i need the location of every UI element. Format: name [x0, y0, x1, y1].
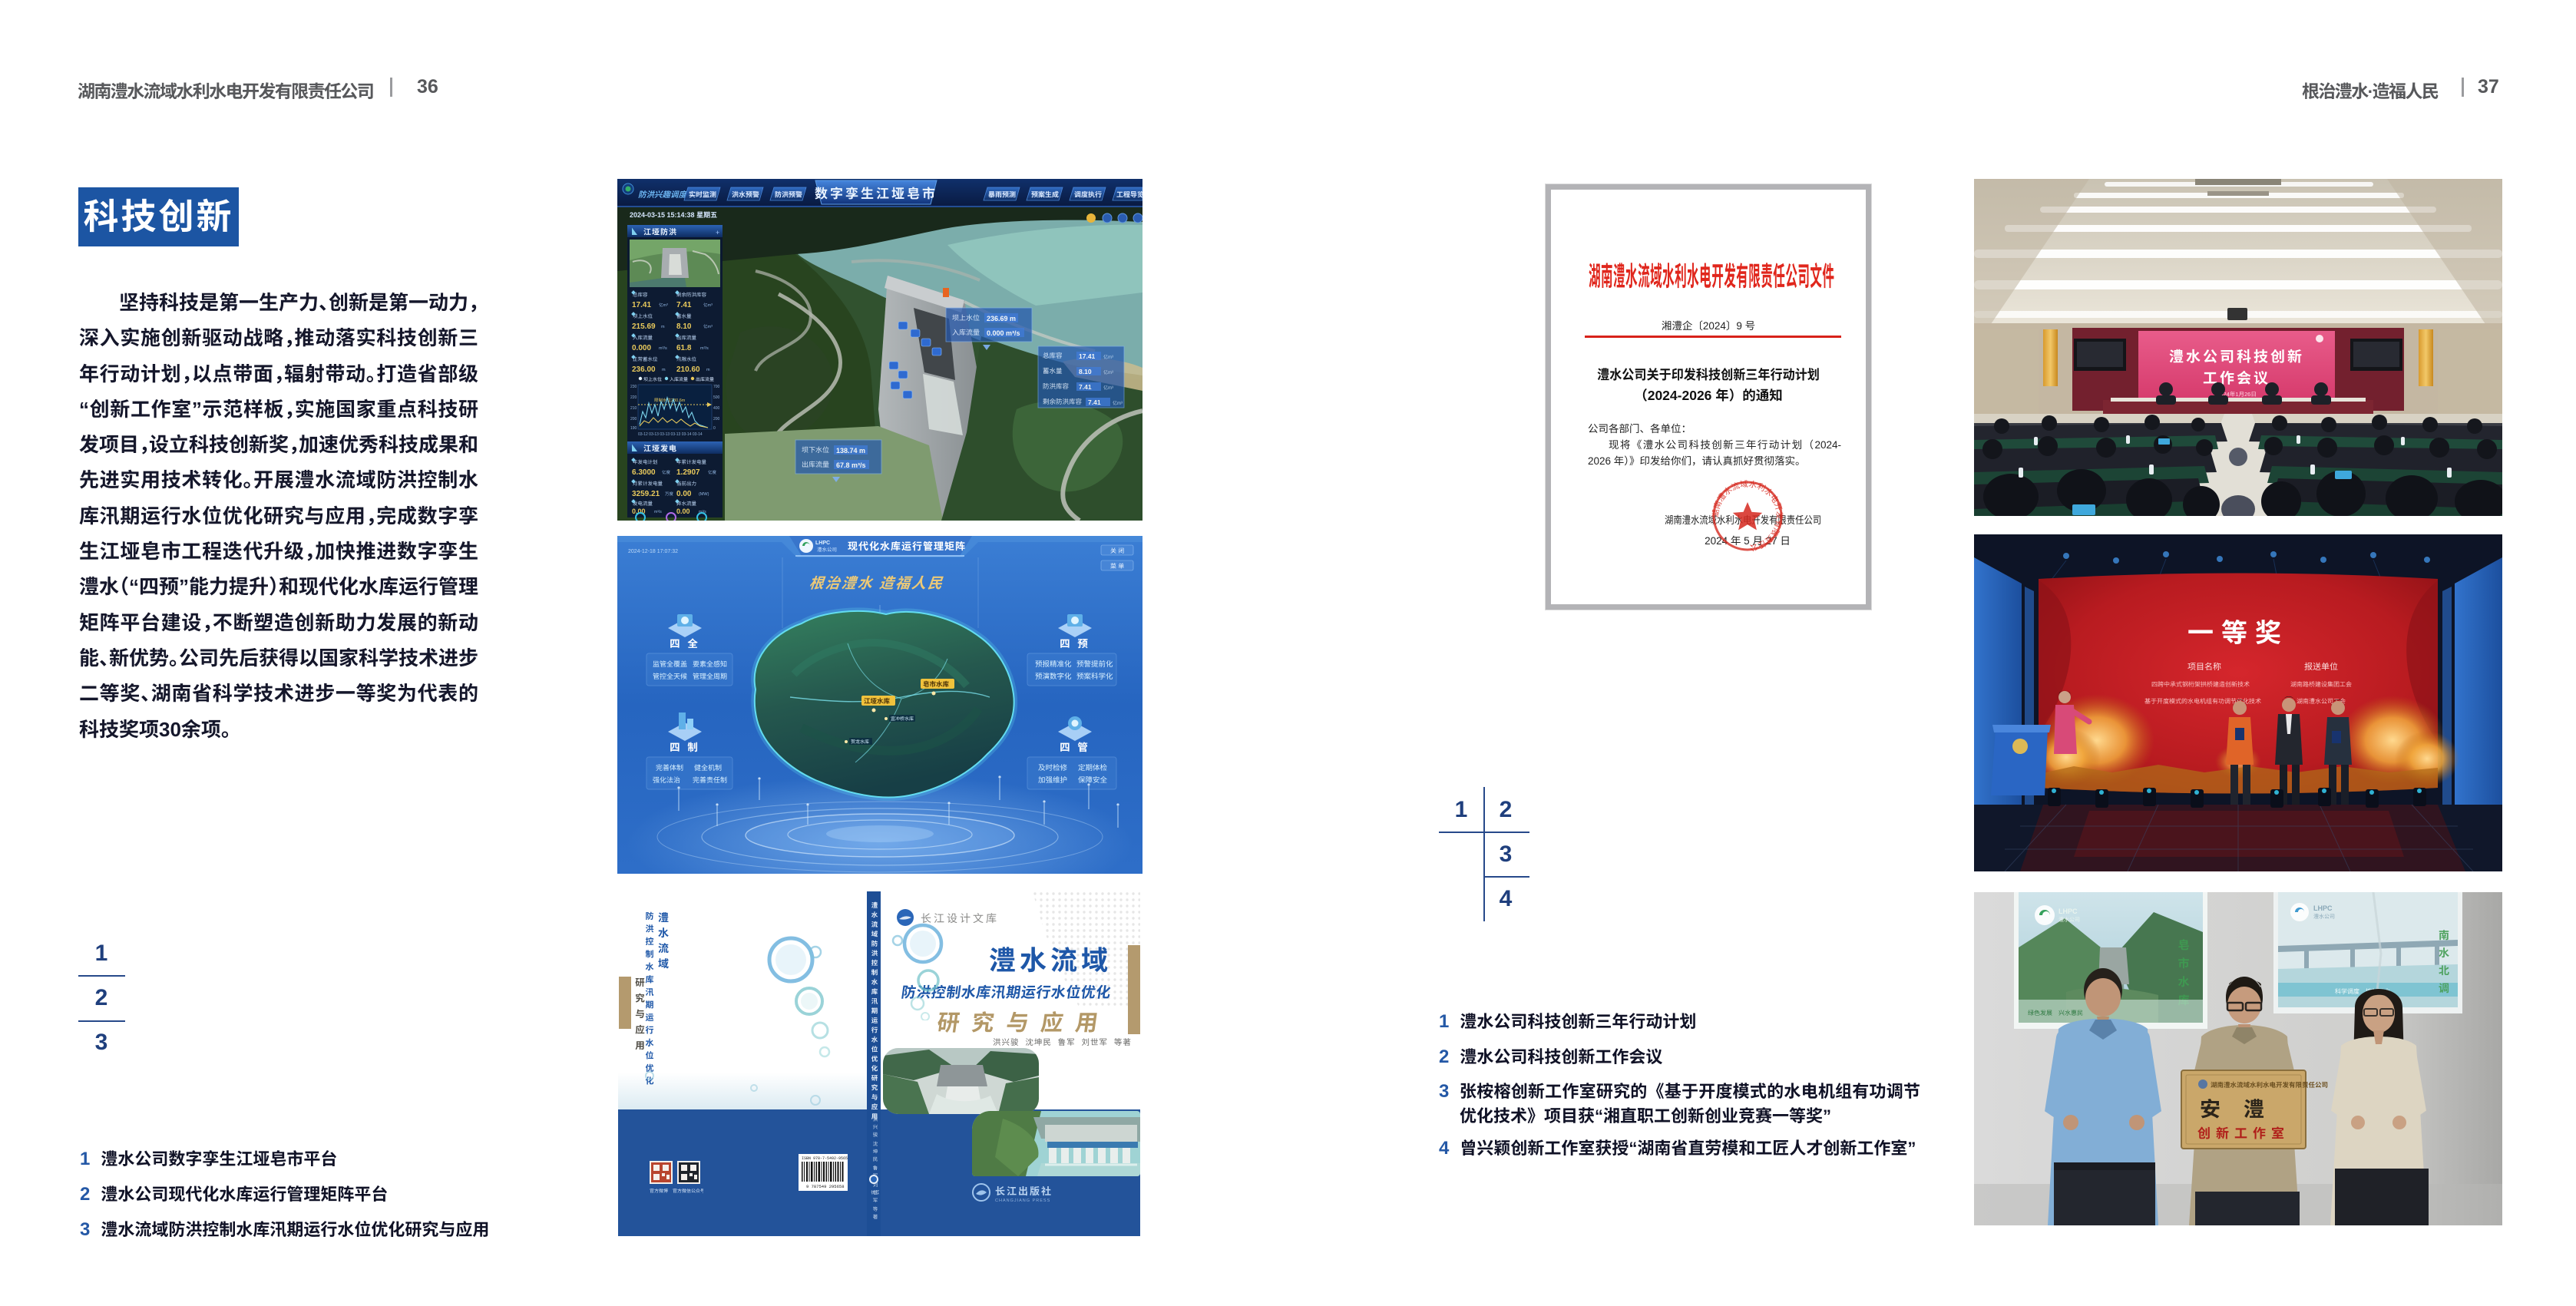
- svg-text:210: 210: [630, 406, 637, 411]
- svg-text:亿度: 亿度: [662, 470, 671, 475]
- svg-text:0.000: 0.000: [632, 344, 651, 352]
- svg-text:贺龙水库: 贺龙水库: [851, 739, 869, 745]
- svg-text:700: 700: [713, 385, 720, 389]
- svg-text:长江出版社: 长江出版社: [995, 1183, 1053, 1198]
- svg-text:190: 190: [630, 426, 637, 431]
- svg-text:防洪预警: 防洪预警: [775, 191, 802, 199]
- svg-text:2024-12-18 17:07:32: 2024-12-18 17:07:32: [628, 549, 678, 554]
- svg-text:长江: 长江: [871, 1189, 879, 1195]
- svg-text:当前出力: 当前出力: [676, 481, 696, 487]
- svg-text:亿m³: 亿m³: [703, 324, 713, 329]
- svg-text:湖南路桥建设集团工会: 湖南路桥建设集团工会: [2290, 681, 2352, 688]
- svg-text:工作会议: 工作会议: [2203, 370, 2270, 387]
- svg-text:入库流量: 入库流量: [670, 376, 688, 382]
- svg-text:强化法治: 强化法治: [653, 776, 680, 784]
- svg-text:210.60: 210.60: [676, 365, 700, 374]
- svg-text:ISBN 978-7-5492-9565-8: ISBN 978-7-5492-9565-8: [802, 1156, 848, 1161]
- svg-text:6.3000: 6.3000: [632, 468, 656, 477]
- svg-text:亿m³: 亿m³: [1103, 385, 1113, 391]
- svg-text:月累计发电量: 月累计发电量: [633, 481, 663, 487]
- svg-text:m: m: [706, 368, 710, 372]
- svg-text:实时监测: 实时监测: [689, 191, 716, 199]
- svg-text:调度执行: 调度执行: [1074, 191, 1102, 199]
- svg-text:亿m³: 亿m³: [659, 303, 668, 308]
- svg-text:正常蓄水位: 正常蓄水位: [633, 356, 658, 362]
- svg-text:要素全感知: 要素全感知: [693, 660, 727, 668]
- svg-text:1.2907: 1.2907: [676, 468, 700, 477]
- svg-text:弃水流量: 弃水流量: [676, 501, 697, 507]
- svg-text:m³/s: m³/s: [700, 346, 709, 351]
- svg-text:500: 500: [713, 395, 720, 400]
- svg-text:定期体检: 定期体检: [1078, 763, 1108, 772]
- svg-text:管控全天候: 管控全天候: [653, 673, 687, 680]
- svg-text:总库容: 总库容: [1043, 352, 1063, 359]
- svg-text:出库流量: 出库流量: [676, 335, 697, 341]
- svg-text:坝下水位: 坝下水位: [802, 446, 829, 454]
- svg-text:17.41: 17.41: [1079, 352, 1096, 360]
- svg-text:年累计发电量: 年累计发电量: [676, 459, 707, 465]
- svg-text:剩余防洪库容: 剩余防洪库容: [1043, 398, 1083, 405]
- svg-text:8.10: 8.10: [676, 322, 692, 331]
- svg-text:2024-03-15 15:14:38 星期五: 2024-03-15 15:14:38 星期五: [630, 211, 717, 219]
- svg-text:管理全周期: 管理全周期: [693, 673, 727, 680]
- svg-text:8.10: 8.10: [1079, 368, 1092, 375]
- svg-text:亿m³: 亿m³: [703, 303, 713, 308]
- svg-text:绿色发展 兴水惠民: 绿色发展 兴水惠民: [2028, 1010, 2083, 1017]
- svg-text:400: 400: [713, 406, 720, 411]
- svg-text:0.000 m³/s: 0.000 m³/s: [987, 329, 1020, 337]
- svg-text:预案科学化: 预案科学化: [1076, 672, 1113, 681]
- svg-text:加强维护: 加强维护: [1038, 776, 1067, 785]
- svg-text:LHPC: LHPC: [2058, 908, 2078, 915]
- svg-text:入库流量: 入库流量: [952, 329, 980, 336]
- svg-text:0.00: 0.00: [676, 508, 690, 515]
- svg-text:7.41: 7.41: [676, 301, 692, 309]
- svg-text:监管全覆盖: 监管全覆盖: [653, 660, 687, 668]
- svg-text:215.69: 215.69: [632, 322, 656, 331]
- svg-text:关 闭: 关 闭: [1110, 547, 1124, 554]
- svg-text:限制水位230.6m: 限制水位230.6m: [654, 398, 686, 403]
- svg-text:预演数字化: 预演数字化: [1035, 672, 1072, 681]
- svg-text:m: m: [662, 368, 666, 372]
- svg-text:四 管: 四 管: [1060, 742, 1090, 753]
- svg-text:200: 200: [630, 417, 637, 422]
- svg-text:坝上水位: 坝上水位: [952, 314, 980, 322]
- svg-text:蓄水量: 蓄水量: [1043, 367, 1063, 375]
- svg-text:LHPC: LHPC: [815, 541, 830, 546]
- svg-text:61.8: 61.8: [676, 344, 692, 352]
- svg-text:保障安全: 保障安全: [1078, 775, 1108, 785]
- svg-text:数字孪生江垭皂市: 数字孪生江垭皂市: [815, 187, 937, 201]
- svg-text:工程导览: 工程导览: [1116, 191, 1143, 199]
- svg-text:+: +: [716, 229, 719, 236]
- svg-text:m³/s: m³/s: [659, 346, 667, 351]
- svg-text:菜 单: 菜 单: [1110, 563, 1124, 570]
- svg-text:坝上水位: 坝上水位: [633, 313, 653, 319]
- svg-text:项目名称: 项目名称: [2187, 662, 2221, 672]
- svg-text:发电流量: 发电流量: [633, 501, 653, 507]
- svg-text:四 全: 四 全: [670, 638, 700, 650]
- svg-text:7.41: 7.41: [1088, 398, 1101, 406]
- svg-text:230: 230: [630, 385, 637, 389]
- svg-text:健全机制: 健全机制: [694, 764, 722, 772]
- svg-text:预报精准化: 预报精准化: [1035, 660, 1072, 669]
- svg-text:南水北调: 南水北调: [2438, 927, 2450, 998]
- svg-text:现代化水库运行管理矩阵: 现代化水库运行管理矩阵: [848, 541, 966, 552]
- svg-text:湖南澧水流域水利水电开发有限责任公司: 湖南澧水流域水利水电开发有限责任公司: [2211, 1081, 2328, 1089]
- svg-text:17.41: 17.41: [632, 301, 651, 309]
- svg-text:澧水公司: 澧水公司: [2058, 917, 2080, 923]
- svg-text:0: 0: [713, 426, 716, 431]
- svg-text:m³/s: m³/s: [654, 510, 662, 514]
- svg-text:9 787549 295658: 9 787549 295658: [806, 1184, 845, 1189]
- svg-text:官方微博 官方微信公众号: 官方微博 官方微信公众号: [650, 1187, 703, 1194]
- svg-text:完善责任制: 完善责任制: [693, 776, 727, 784]
- svg-text:坝上水位: 坝上水位: [643, 376, 662, 382]
- svg-text:138.74 m: 138.74 m: [836, 447, 865, 455]
- svg-text:剩余防洪库容: 剩余防洪库容: [676, 292, 707, 298]
- svg-text:四 制: 四 制: [670, 742, 700, 753]
- svg-text:(MW): (MW): [699, 492, 709, 497]
- svg-text:宜冲桥水库: 宜冲桥水库: [891, 716, 914, 722]
- svg-text:03-12 03-13 03-13 03-13 03: 03-12 03-13 03-13 03-13 03-14 03-14: [638, 432, 703, 437]
- svg-text:根治澧水 造福人民: 根治澧水 造福人民: [809, 575, 945, 592]
- svg-text:创新工作室: 创新工作室: [2197, 1122, 2290, 1142]
- svg-text:CHANGJIANG PRESS: CHANGJIANG PRESS: [995, 1199, 1050, 1203]
- svg-text:澧水公司科技创新: 澧水公司科技创新: [2169, 349, 2304, 365]
- svg-text:汛限水位: 汛限水位: [676, 356, 697, 362]
- svg-text:出库流量: 出库流量: [802, 461, 829, 468]
- svg-text:安澧: 安澧: [2200, 1093, 2287, 1122]
- svg-text:江垭防洪: 江垭防洪: [643, 228, 677, 237]
- svg-text:防洪兴趣调度: 防洪兴趣调度: [638, 190, 688, 200]
- svg-text:LHPC: LHPC: [2313, 904, 2333, 912]
- svg-text:7.41: 7.41: [1079, 383, 1092, 391]
- svg-text:预警提前化: 预警提前化: [1076, 660, 1113, 669]
- svg-text:m: m: [661, 325, 665, 329]
- svg-text:亿度: 亿度: [708, 470, 717, 475]
- svg-text:年发电计划: 年发电计划: [633, 459, 658, 465]
- svg-text:澧水公司: 澧水公司: [2313, 914, 2335, 920]
- svg-text:3259.21: 3259.21: [632, 490, 660, 498]
- svg-text:200: 200: [713, 417, 720, 422]
- svg-text:0.00: 0.00: [676, 490, 692, 498]
- svg-text:出库流量: 出库流量: [696, 376, 714, 382]
- svg-text:及时检修: 及时检修: [1038, 763, 1068, 772]
- svg-text:完善体制: 完善体制: [656, 764, 683, 772]
- svg-text:皂市水库: 皂市水库: [2177, 937, 2190, 1010]
- svg-text:预案生成: 预案生成: [1031, 191, 1059, 199]
- svg-text:236.00: 236.00: [632, 365, 656, 374]
- svg-text:暴雨预测: 暴雨预测: [988, 191, 1016, 199]
- svg-text:亿m³: 亿m³: [1103, 354, 1113, 360]
- svg-text:220: 220: [630, 395, 637, 400]
- svg-text:四 预: 四 预: [1060, 638, 1090, 650]
- svg-text:一等奖: 一等奖: [2187, 619, 2289, 648]
- svg-text:防洪库容: 防洪库容: [1043, 382, 1070, 390]
- svg-text:江垭水库: 江垭水库: [864, 697, 891, 705]
- svg-text:洪水预警: 洪水预警: [732, 191, 759, 199]
- svg-text:皂市水库: 皂市水库: [923, 680, 950, 688]
- svg-text:亿m³: 亿m³: [1113, 400, 1123, 406]
- svg-text:236.69 m: 236.69 m: [987, 315, 1016, 322]
- svg-text:入库流量: 入库流量: [633, 335, 653, 341]
- svg-text:澧水公司: 澧水公司: [817, 547, 837, 553]
- svg-text:万度: 万度: [665, 491, 674, 497]
- svg-text:江垭发电: 江垭发电: [643, 445, 677, 454]
- svg-text:67.8 m³/s: 67.8 m³/s: [836, 461, 866, 469]
- svg-text:四跨中承式钢桁架拱桥建造创新技术: 四跨中承式钢桁架拱桥建造创新技术: [2151, 681, 2250, 688]
- svg-text:亿m³: 亿m³: [1103, 369, 1113, 375]
- svg-text:报送单位: 报送单位: [2304, 662, 2338, 672]
